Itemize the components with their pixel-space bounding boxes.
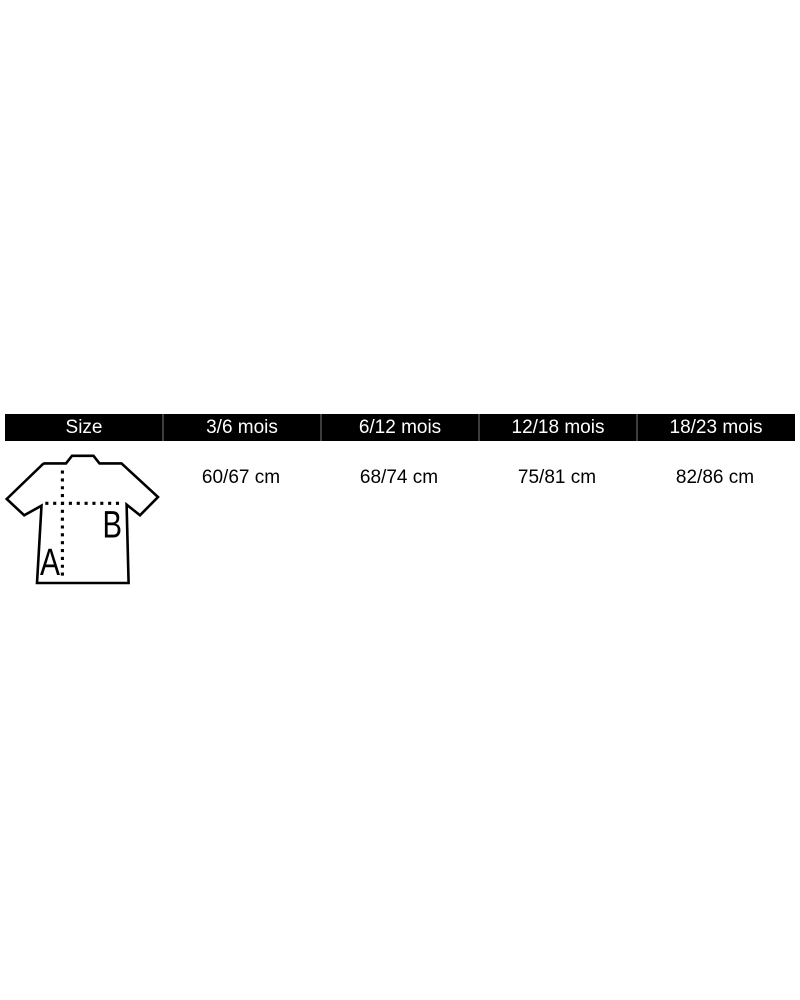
svg-text:B: B [103,505,123,547]
svg-text:A: A [40,542,61,584]
